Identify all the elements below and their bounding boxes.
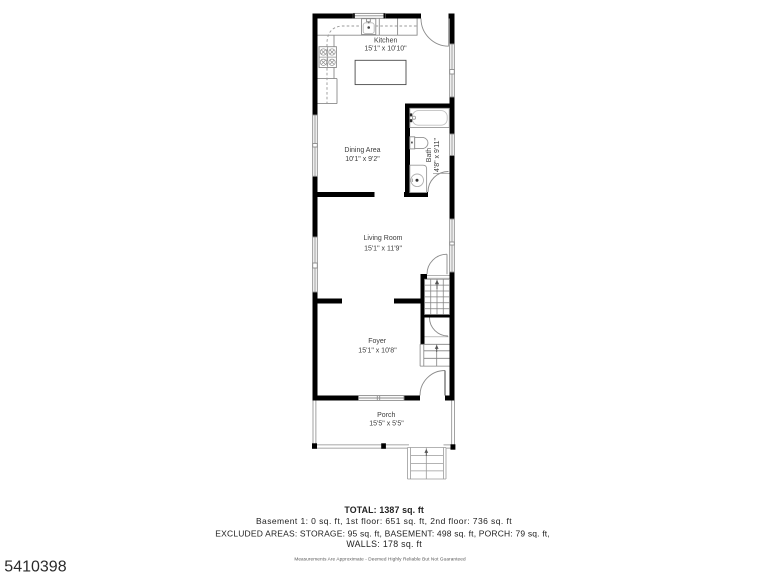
svg-text:EXCLUDED AREAS: STORAGE: 95 sq: EXCLUDED AREAS: STORAGE: 95 sq. ft, BASE… — [215, 528, 550, 538]
svg-text:15'5" x 5'5": 15'5" x 5'5" — [369, 420, 404, 427]
svg-text:15'1" x 10'10": 15'1" x 10'10" — [364, 46, 407, 53]
svg-text:Kitchen: Kitchen — [374, 38, 397, 45]
svg-text:5410398: 5410398 — [4, 559, 66, 576]
svg-text:15'1" x 10'8": 15'1" x 10'8" — [358, 347, 397, 354]
svg-text:Dining Area: Dining Area — [344, 147, 380, 154]
svg-text:Porch: Porch — [377, 412, 395, 419]
svg-text:Bath: Bath — [426, 148, 433, 163]
svg-text:WALLS: 178 sq. ft: WALLS: 178 sq. ft — [346, 539, 422, 549]
svg-text:Basement 1: 0 sq. ft, 1st floo: Basement 1: 0 sq. ft, 1st floor: 651 sq.… — [256, 516, 512, 526]
svg-text:4'8" x 9'11": 4'8" x 9'11" — [434, 137, 441, 171]
svg-text:Foyer: Foyer — [368, 338, 387, 345]
svg-text:10'1" x 9'2": 10'1" x 9'2" — [345, 156, 380, 163]
svg-text:Measurements Are Approximate -: Measurements Are Approximate - Deemed Hi… — [294, 556, 466, 561]
svg-text:TOTAL: 1387 sq. ft: TOTAL: 1387 sq. ft — [344, 505, 424, 515]
svg-text:15'1" x 11'9": 15'1" x 11'9" — [364, 246, 402, 253]
svg-text:Living Room: Living Room — [364, 235, 403, 242]
